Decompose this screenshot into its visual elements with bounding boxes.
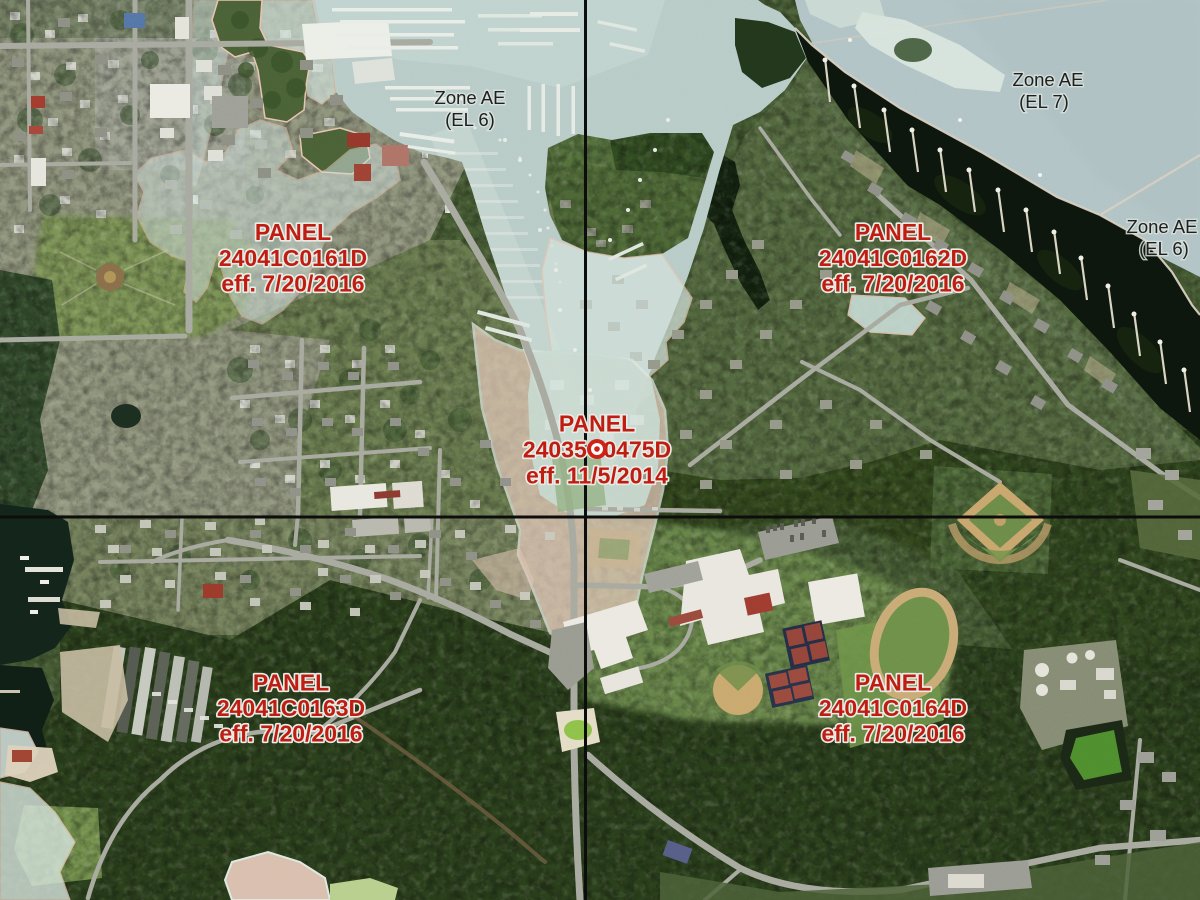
svg-text:eff. 7/20/2016: eff. 7/20/2016 (821, 721, 964, 747)
svg-text:PANEL: PANEL (559, 411, 635, 437)
svg-text:Zone AE: Zone AE (1127, 216, 1198, 237)
svg-text:24041C0162D: 24041C0162D (819, 245, 967, 271)
svg-text:24041C0161D: 24041C0161D (219, 245, 367, 271)
svg-text:PANEL: PANEL (855, 219, 931, 245)
svg-text:eff. 7/20/2016: eff. 7/20/2016 (821, 271, 964, 297)
svg-text:Zone AE: Zone AE (435, 87, 506, 108)
svg-text:(EL 7): (EL 7) (1019, 91, 1069, 112)
svg-text:PANEL: PANEL (855, 670, 931, 696)
svg-text:PANEL: PANEL (255, 219, 331, 245)
svg-text:24041C0164D: 24041C0164D (819, 695, 967, 721)
svg-text:24041C0163D: 24041C0163D (217, 695, 365, 721)
svg-text:eff. 7/20/2016: eff. 7/20/2016 (221, 271, 364, 297)
svg-text:PANEL: PANEL (253, 670, 329, 696)
svg-text:Zone AE: Zone AE (1013, 69, 1084, 90)
svg-text:(EL 6): (EL 6) (1139, 238, 1189, 259)
svg-text:(EL 6): (EL 6) (445, 109, 495, 130)
svg-text:eff. 7/20/2016: eff. 7/20/2016 (219, 721, 362, 747)
svg-text:eff. 11/5/2014: eff. 11/5/2014 (526, 463, 668, 489)
